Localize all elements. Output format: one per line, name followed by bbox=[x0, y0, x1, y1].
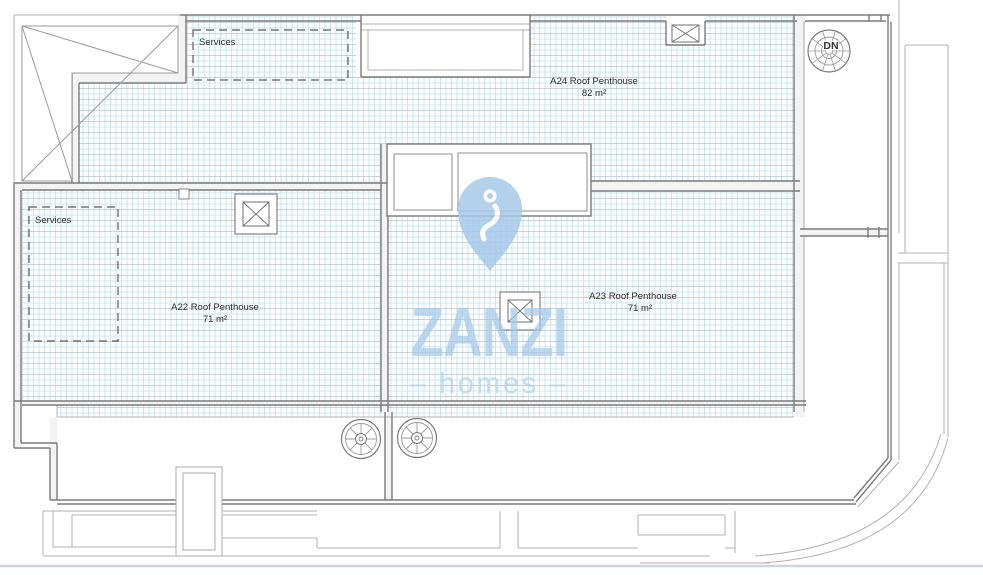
unit-name: A22 Roof Penthouse bbox=[171, 302, 259, 313]
services-label: Services bbox=[35, 215, 72, 226]
roof-plan-page: DN Services Services A24 Roof Penthouse … bbox=[0, 0, 983, 575]
roof-light-icon bbox=[235, 194, 277, 234]
stair-bulkhead-outline bbox=[176, 467, 222, 556]
vent-envelope-icon bbox=[672, 25, 699, 42]
floor-plan-drawing: DN Services Services A24 Roof Penthouse … bbox=[0, 0, 983, 575]
unit-area: 71 m² bbox=[203, 314, 227, 325]
unit-area: 82 m² bbox=[582, 88, 606, 99]
watermark-tagline: – homes – bbox=[410, 367, 569, 400]
unit-name: A23 Roof Penthouse bbox=[589, 291, 677, 302]
watermark-brand: ZANZI bbox=[411, 294, 568, 372]
unit-area: 71 m² bbox=[628, 303, 652, 314]
wall-notch bbox=[179, 189, 189, 199]
unit-name: A24 Roof Penthouse bbox=[550, 76, 638, 87]
services-label: Services bbox=[199, 37, 236, 48]
fan-icon bbox=[342, 420, 381, 459]
stair-direction-label: DN bbox=[823, 40, 838, 52]
fan-icon bbox=[398, 419, 437, 458]
spiral-stair-dn-symbol: DN bbox=[808, 30, 850, 72]
